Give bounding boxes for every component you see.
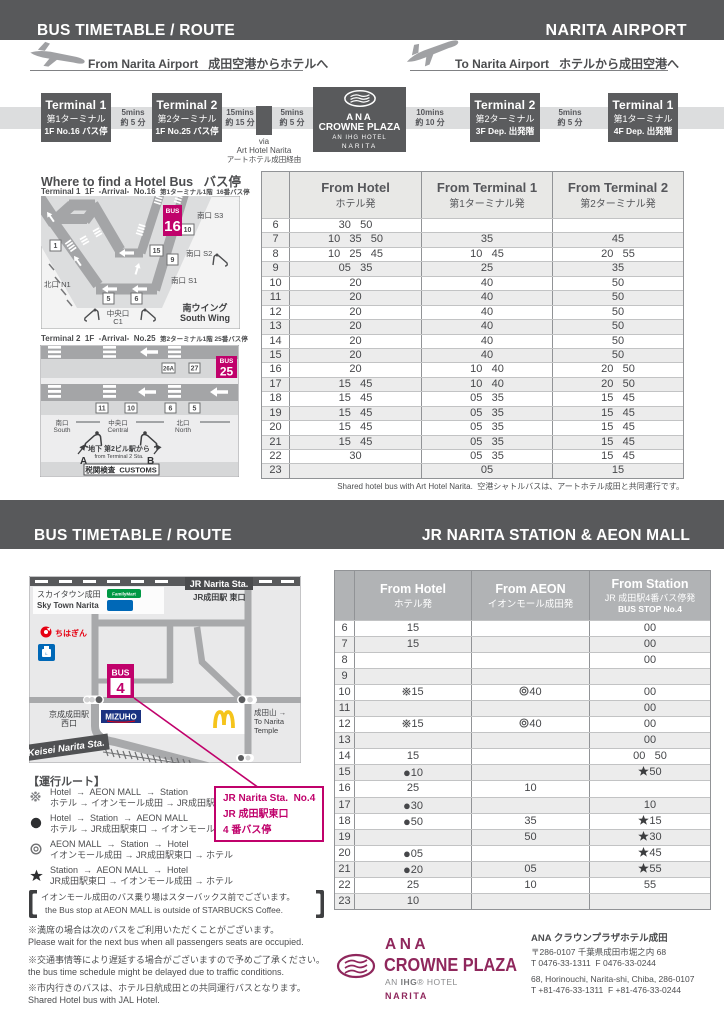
- svg-text:North: North: [175, 427, 191, 434]
- svg-text:AN IHG® HOTEL: AN IHG® HOTEL: [385, 977, 458, 987]
- svg-text:27: 27: [191, 366, 199, 373]
- svg-text:西口: 西口: [61, 719, 77, 728]
- svg-text:5: 5: [193, 406, 197, 413]
- svg-text:JR成田駅 東口: JR成田駅 東口: [193, 592, 245, 602]
- svg-text:C1: C1: [113, 317, 123, 326]
- svg-text:南ウイング: 南ウイング: [182, 302, 227, 313]
- svg-text:中央口: 中央口: [108, 418, 128, 427]
- svg-text:FamilyMart: FamilyMart: [112, 592, 136, 597]
- svg-text:16: 16: [164, 218, 181, 235]
- svg-text:京成成田駅: 京成成田駅: [49, 709, 89, 719]
- svg-text:South: South: [54, 427, 71, 434]
- svg-text:ちはぎん: ちはぎん: [55, 628, 87, 638]
- svg-text:南口 S2: 南口 S2: [186, 248, 212, 258]
- svg-text:10: 10: [127, 406, 135, 413]
- svg-text:北口 N1: 北口 N1: [44, 280, 71, 289]
- svg-text:NARITA: NARITA: [385, 991, 428, 1001]
- svg-text:9: 9: [171, 257, 175, 264]
- svg-text:1: 1: [54, 243, 58, 250]
- svg-text:BUS: BUS: [166, 208, 180, 215]
- svg-text:10: 10: [184, 227, 192, 234]
- svg-text:26A: 26A: [163, 367, 175, 373]
- svg-text:北口: 北口: [177, 419, 190, 427]
- svg-text:JR Narita Sta.: JR Narita Sta.: [190, 579, 249, 589]
- svg-text:11: 11: [98, 406, 106, 413]
- svg-text:5: 5: [107, 296, 111, 303]
- svg-text:BUS: BUS: [112, 668, 130, 678]
- svg-text:6: 6: [135, 296, 139, 303]
- svg-text:スカイタウン成田: スカイタウン成田: [37, 589, 101, 599]
- svg-text:南口: 南口: [56, 418, 69, 427]
- svg-text:4: 4: [116, 680, 125, 697]
- svg-text:15: 15: [153, 248, 161, 255]
- svg-text:from Terminal 2 Sta.: from Terminal 2 Sta.: [94, 454, 144, 460]
- svg-text:South Wing: South Wing: [180, 313, 230, 323]
- svg-text:南口 S1: 南口 S1: [171, 275, 197, 285]
- svg-text:6: 6: [169, 406, 173, 413]
- svg-text:Sky Town Narita: Sky Town Narita: [37, 601, 99, 610]
- svg-text:25: 25: [220, 365, 234, 379]
- svg-text:CROWNE PLAZA: CROWNE PLAZA: [384, 954, 517, 975]
- svg-text:南口 S3: 南口 S3: [197, 210, 223, 220]
- svg-text:ANA: ANA: [385, 936, 429, 953]
- svg-text:Central: Central: [108, 427, 130, 434]
- svg-text:税関検査 CUSTOMS: 税関検査 CUSTOMS: [85, 465, 157, 475]
